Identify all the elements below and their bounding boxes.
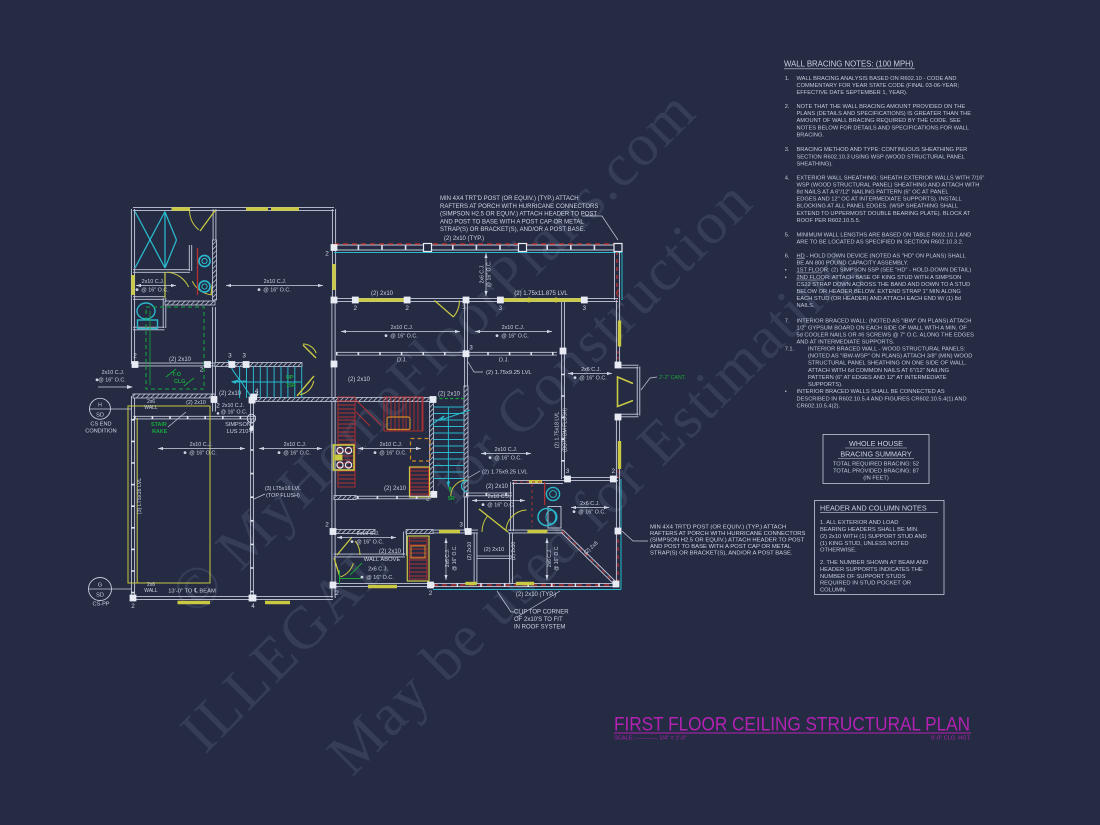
- svg-text:ROOF PER R602.10.5.5.: ROOF PER R602.10.5.5.: [797, 218, 861, 224]
- svg-text:@ 16" O.C.: @ 16" O.C.: [579, 376, 606, 382]
- svg-text:(2) 1.75x9.25 LVL: (2) 1.75x9.25 LVL: [486, 370, 532, 376]
- svg-text:3: 3: [499, 305, 503, 312]
- svg-text:@ 16" O.C.: @ 16" O.C.: [390, 334, 417, 340]
- svg-text:HD - HOLD DOWN DEVICE (NOTED A: HD - HOLD DOWN DEVICE (NOTED AS "HD" ON …: [797, 254, 966, 260]
- svg-text:BRACING.: BRACING.: [797, 132, 825, 138]
- svg-text:PATTERN (6" AT EDGES AND 12" A: PATTERN (6" AT EDGES AND 12" AT INTERMED…: [808, 375, 947, 381]
- svg-text:2x6 C.J.: 2x6 C.J.: [581, 367, 601, 373]
- svg-text:CS22 STRAP DOWN ACROSS THE BAN: CS22 STRAP DOWN ACROSS THE BAND AND DOWN…: [797, 282, 971, 288]
- svg-text:(3) LT5x16 LVL: (3) LT5x16 LVL: [137, 478, 143, 514]
- svg-text:(2) 2x10: (2) 2x10: [438, 392, 461, 398]
- svg-text:1ST FLOOR: (2) SIMPSON SSP (SE: 1ST FLOOR: (2) SIMPSON SSP (SEE "HD" - H…: [797, 268, 972, 274]
- svg-text:2: 2: [216, 403, 220, 410]
- svg-text:•: •: [785, 275, 787, 281]
- svg-text:RAFTERS AT PORCH WITH HURRICAN: RAFTERS AT PORCH WITH HURRICANE CONNECTO…: [440, 204, 598, 210]
- svg-text:H: H: [98, 403, 102, 409]
- svg-text:CR602.10.5.4(2).: CR602.10.5.4(2).: [797, 403, 841, 409]
- svg-text:•: •: [785, 268, 787, 274]
- svg-text:4: 4: [255, 391, 259, 398]
- svg-text:(TOP FLUSH): (TOP FLUSH): [266, 493, 300, 499]
- svg-text:2x10 C.J.: 2x10 C.J.: [502, 325, 525, 331]
- svg-text:SUPPORTS).: SUPPORTS).: [808, 382, 843, 388]
- svg-text:(BOTTOM FLUSH): (BOTTOM FLUSH): [563, 408, 569, 452]
- svg-text:BRACING SUMMARY: BRACING SUMMARY: [840, 450, 912, 459]
- svg-text:@ 16" O.C.: @ 16" O.C.: [487, 503, 514, 509]
- svg-text:•: •: [785, 389, 787, 395]
- svg-text:2: 2: [325, 522, 329, 529]
- svg-text:2: 2: [612, 468, 616, 475]
- svg-text:4.: 4.: [785, 176, 790, 182]
- svg-text:G: G: [98, 583, 102, 589]
- svg-text:2: 2: [429, 590, 433, 597]
- svg-text:(2) 2x10: (2) 2x10: [371, 291, 394, 297]
- svg-text:2x10 C.J.: 2x10 C.J.: [488, 494, 511, 500]
- svg-text:(2) 2x10: (2) 2x10: [348, 377, 371, 383]
- svg-text:3: 3: [566, 468, 570, 475]
- svg-text:2x10 C.J.: 2x10 C.J.: [357, 531, 380, 537]
- svg-text:2x6 C.J.: 2x6 C.J.: [547, 549, 553, 567]
- svg-text:NOTES BELOW FOR DETAILS AND SP: NOTES BELOW FOR DETAILS AND SPECIFICATIO…: [797, 125, 969, 131]
- svg-text:2x10 C.J.: 2x10 C.J.: [495, 447, 518, 453]
- svg-text:NUMBER OF SUPPORT STUDS: NUMBER OF SUPPORT STUDS: [820, 574, 906, 580]
- svg-text:COLUMN.: COLUMN.: [820, 587, 847, 593]
- svg-text:MINIMUM WALL LENGTHS ARE BASED: MINIMUM WALL LENGTHS ARE BASED ON TABLE …: [797, 232, 972, 238]
- svg-text:WALL: WALL: [144, 405, 158, 411]
- svg-text:2x10 C.J.: 2x10 C.J.: [222, 403, 244, 409]
- svg-text:(2) 2x10: (2) 2x10: [186, 400, 206, 406]
- svg-text:SCALE: ------------ 1/4" = 1'-: SCALE: ------------ 1/4" = 1'-0": [614, 736, 687, 742]
- svg-text:CS-PP: CS-PP: [92, 602, 109, 608]
- svg-text:@ 16" O.C.: @ 16" O.C.: [452, 545, 458, 570]
- svg-text:5R: 5R: [448, 496, 455, 502]
- svg-text:(2) 2x10: (2) 2x10: [219, 391, 242, 397]
- svg-text:2x10 C.J.: 2x10 C.J.: [190, 442, 213, 448]
- svg-text:(2) 2x10: (2) 2x10: [467, 542, 473, 561]
- svg-text:COMMENTARY FOR YEAR STATE CODE: COMMENTARY FOR YEAR STATE CODE (FINAL 03…: [797, 83, 960, 89]
- svg-text:(SIMPSON H2.5 OR EQUIV.) ATTAC: (SIMPSON H2.5 OR EQUIV.) ATTACH HEADER T…: [650, 538, 805, 544]
- svg-text:STRAP(S) OR BRACKET(S), AND/OR: STRAP(S) OR BRACKET(S), AND/OR A POST BA…: [440, 227, 586, 233]
- svg-text:EACH STUD (OR HEADER) AND ATTA: EACH STUD (OR HEADER) AND ATTACH EACH EN…: [797, 296, 961, 302]
- svg-text:2x10 C.J.: 2x10 C.J.: [142, 279, 165, 285]
- svg-text:BRACING METHOD AND TYPE: CONTI: BRACING METHOD AND TYPE: CONTINUOUS SHEA…: [797, 147, 968, 153]
- svg-text:UP: UP: [286, 375, 294, 381]
- svg-text:2: 2: [426, 495, 430, 502]
- svg-text:EXTERIOR WALL SHEATHING: SHEAT: EXTERIOR WALL SHEATHING: SHEATH EXTERIOR…: [797, 176, 985, 182]
- svg-text:@ 16" O.C.: @ 16" O.C.: [554, 545, 560, 570]
- svg-text:(2) 2x10: (2) 2x10: [511, 542, 517, 561]
- svg-text:@ 16" O.C.: @ 16" O.C.: [189, 451, 216, 457]
- svg-text:5.: 5.: [785, 232, 790, 238]
- svg-text:AMOUNT OF WALL BRACING REQUIRE: AMOUNT OF WALL BRACING REQUIRED BY THE C…: [797, 118, 961, 124]
- svg-text:(IN FEET): (IN FEET): [863, 476, 889, 482]
- svg-text:REQUIRED IN STUD POCKET OR: REQUIRED IN STUD POCKET OR: [820, 581, 911, 587]
- svg-text:(2) 2x10: (2) 2x10: [486, 484, 509, 490]
- svg-text:RAFTERS AT PORCH WITH HURRICAN: RAFTERS AT PORCH WITH HURRICANE CONNECTO…: [650, 531, 806, 537]
- svg-text:D.J.: D.J.: [499, 358, 509, 364]
- svg-text:4: 4: [251, 603, 255, 610]
- svg-text:D.J.: D.J.: [397, 358, 407, 364]
- svg-text:EDGES AND 12" OC AT INTERMEDIA: EDGES AND 12" OC AT INTERMEDIATE SUPPORT…: [797, 197, 962, 203]
- svg-text:3.: 3.: [785, 147, 790, 153]
- svg-text:TOTAL REQUIRED BRACING: 52: TOTAL REQUIRED BRACING: 52: [833, 462, 919, 468]
- svg-text:DESCRIBED IN R602.10.5.4 AND F: DESCRIBED IN R602.10.5.4 AND FIGURES CR6…: [797, 396, 967, 402]
- svg-text:OTHERWISE.: OTHERWISE.: [820, 548, 857, 554]
- svg-text:AND POST TO BASE WITH A POST C: AND POST TO BASE WITH A POST CAP OR META…: [440, 219, 584, 225]
- svg-text:LUS 210-2: LUS 210-2: [227, 429, 254, 435]
- svg-text:@ 16" O.C.: @ 16" O.C.: [379, 451, 406, 457]
- svg-text:(2) 1.75x11.875 LVL: (2) 1.75x11.875 LVL: [514, 291, 568, 297]
- svg-text:(2) 2x10 WITH (1) SUPPORT STUD: (2) 2x10 WITH (1) SUPPORT STUD AND: [820, 534, 927, 540]
- svg-text:2: 2: [325, 251, 329, 258]
- svg-text:3: 3: [469, 345, 473, 352]
- svg-text:INTERIOR BRACED WALLS SHALL BE: INTERIOR BRACED WALLS SHALL BE CONNECTED…: [797, 389, 945, 395]
- svg-text:WALL ABOVE: WALL ABOVE: [364, 557, 401, 563]
- svg-text:3: 3: [459, 522, 463, 529]
- svg-text:HEADER SUPPORTS INDICATES THE: HEADER SUPPORTS INDICATES THE: [820, 567, 923, 573]
- svg-text:(2) 1.75x18 LVL: (2) 1.75x18 LVL: [555, 412, 561, 449]
- svg-text:STAIR: STAIR: [151, 422, 167, 428]
- svg-text:(2) 2x10 (TYP.): (2) 2x10 (TYP.): [444, 236, 484, 242]
- svg-text:6.: 6.: [785, 254, 790, 260]
- svg-text:CLG.: CLG.: [174, 379, 187, 385]
- svg-text:@ 16" O.C.: @ 16" O.C.: [487, 261, 493, 287]
- svg-text:2x10 C.J.: 2x10 C.J.: [391, 325, 414, 331]
- svg-text:PLANS (DETAILS AND SPECIFICATI: PLANS (DETAILS AND SPECIFICATIONS) IS GR…: [797, 111, 972, 117]
- svg-text:SECTION R602.10.3 USING WSP (W: SECTION R602.10.3 USING WSP (WOOD STRUCT…: [797, 154, 965, 160]
- svg-text:CLIP TOP CORNER: CLIP TOP CORNER: [514, 610, 569, 616]
- svg-text:5d COOLER NAILS OR #6 SCREWS @: 5d COOLER NAILS OR #6 SCREWS @ 7" O.C. A…: [797, 332, 975, 338]
- svg-text:BLOCKING AT ALL PANEL EDGES. (: BLOCKING AT ALL PANEL EDGES. (WSP SHEATH…: [797, 204, 959, 210]
- svg-text:SD: SD: [96, 593, 104, 599]
- svg-text:2x10 C.J.: 2x10 C.J.: [264, 279, 287, 285]
- svg-text:3: 3: [583, 305, 587, 312]
- svg-text:2: 2: [133, 353, 137, 360]
- svg-text:MIN 4X4 TRT'D POST (OR EQUIV.): MIN 4X4 TRT'D POST (OR EQUIV.) (TYP.) AT…: [650, 525, 786, 531]
- svg-text:(3) LT5x16 LVL: (3) LT5x16 LVL: [265, 486, 301, 492]
- svg-text:INTERIOR BRACED WALL - WOOD ST: INTERIOR BRACED WALL - WOOD STRUCTURAL P…: [808, 347, 966, 353]
- svg-text:WALL BRACING ANALYSIS BASED ON: WALL BRACING ANALYSIS BASED ON R602.10 -…: [797, 76, 957, 82]
- svg-text:3: 3: [462, 304, 466, 311]
- svg-text:(2) 2x10: (2) 2x10: [484, 547, 505, 553]
- svg-text:7.1.: 7.1.: [785, 347, 795, 353]
- svg-text:@ 16" O.C.: @ 16" O.C.: [366, 575, 393, 581]
- svg-text:2x6 C.J.: 2x6 C.J.: [580, 501, 600, 507]
- svg-text:2. THE NUMBER SHOWN AT BEAM AN: 2. THE NUMBER SHOWN AT BEAM AND: [820, 560, 928, 566]
- svg-text:OF 2x10'S TO FIT: OF 2x10'S TO FIT: [514, 617, 563, 623]
- svg-text:(2) 2x10: (2) 2x10: [379, 549, 402, 555]
- svg-text:AND AT INTERMEDIATE SUPPORTS.: AND AT INTERMEDIATE SUPPORTS.: [797, 339, 895, 345]
- svg-text:1. ALL EXTERIOR AND LOAD: 1. ALL EXTERIOR AND LOAD: [820, 520, 898, 526]
- svg-text:(2) 2x10: (2) 2x10: [169, 357, 192, 363]
- svg-text:@ 16" O.C.: @ 16" O.C.: [494, 456, 521, 462]
- svg-text:BE AN 800 POUND CAPACITY ASSEM: BE AN 800 POUND CAPACITY ASSEMBLY.: [797, 261, 909, 267]
- svg-text:15R: 15R: [286, 383, 296, 389]
- svg-text:1/2" GYPSUM BOARD ON EACH SIDE: 1/2" GYPSUM BOARD ON EACH SIDE OF WALL W…: [797, 325, 968, 331]
- svg-text:CS END: CS END: [90, 422, 111, 428]
- svg-text:WALL BRACING NOTES: (100 MPH): WALL BRACING NOTES: (100 MPH): [784, 60, 914, 69]
- svg-text:2: 2: [405, 305, 409, 312]
- svg-text:3: 3: [228, 353, 232, 360]
- svg-text:(NOTED AS "IBW-WSP" ON PLANS): (NOTED AS "IBW-WSP" ON PLANS) ATTACH 3/8…: [808, 354, 972, 360]
- svg-text:IN ROOF SYSTEM: IN ROOF SYSTEM: [514, 624, 565, 630]
- svg-text:NOTE THAT THE WALL BRACING AMO: NOTE THAT THE WALL BRACING AMOUNT PROVID…: [797, 104, 966, 110]
- svg-text:@ 16" O.C.: @ 16" O.C.: [356, 540, 383, 546]
- svg-text:@ 16" O.C.: @ 16" O.C.: [501, 334, 528, 340]
- svg-text:2'-2" CANT.: 2'-2" CANT.: [659, 375, 686, 381]
- svg-text:(SIMPSON H2.5 OR EQUIV.) ATTAC: (SIMPSON H2.5 OR EQUIV.) ATTACH HEADER T…: [440, 212, 597, 218]
- svg-text:13'-0" TO ℄ BEAM: 13'-0" TO ℄ BEAM: [168, 589, 216, 595]
- svg-text:STRAP(S) OR BRACKET(S), AND/OR: STRAP(S) OR BRACKET(S), AND/OR A POST BA…: [650, 551, 793, 557]
- svg-text:2: 2: [354, 305, 358, 312]
- svg-text:@ 16" O.C.: @ 16" O.C.: [578, 510, 605, 516]
- svg-text:HEADER AND COLUMN NOTES: HEADER AND COLUMN NOTES: [820, 504, 927, 513]
- svg-text:(2) 1.75x9.25 LVL: (2) 1.75x9.25 LVL: [482, 470, 528, 476]
- svg-text:@ 16" O.C.: @ 16" O.C.: [263, 288, 290, 294]
- svg-text:CONDITION: CONDITION: [85, 429, 116, 435]
- svg-text:2: 2: [335, 590, 339, 597]
- svg-text:2x10 C.J.: 2x10 C.J.: [284, 442, 307, 448]
- svg-text:2x10 C.J.: 2x10 C.J.: [380, 442, 403, 448]
- svg-text:@ 16" O.C.: @ 16" O.C.: [98, 378, 125, 384]
- svg-text:STRUCTURAL PANEL SHEATHING ON: STRUCTURAL PANEL SHEATHING ON ONE SIDE O…: [808, 361, 967, 367]
- svg-text:7.: 7.: [785, 318, 790, 324]
- svg-text:ARE TO BE LOCATED AS SPECIFIED: ARE TO BE LOCATED AS SPECIFIED IN SECTIO…: [797, 239, 964, 245]
- svg-text:T-O: T-O: [172, 372, 181, 378]
- svg-text:BEARING HEADERS SHALL BE MIN.: BEARING HEADERS SHALL BE MIN.: [820, 527, 919, 533]
- svg-text:AND POST TO BASE WITH A POST C: AND POST TO BASE WITH A POST CAP OR META…: [650, 544, 792, 550]
- svg-text:2.: 2.: [785, 104, 790, 110]
- svg-text:INTERIOR BRACED WALL: (NOTED A: INTERIOR BRACED WALL: (NOTED AS "IBW" ON…: [797, 318, 972, 324]
- svg-text:WSP (WOOD STRUCTURAL PANEL) SH: WSP (WOOD STRUCTURAL PANEL) SHEATHING AN…: [797, 183, 980, 189]
- svg-text:RAKE: RAKE: [152, 429, 168, 435]
- svg-text:2: 2: [200, 367, 204, 374]
- svg-text:@ 16" O.C.: @ 16" O.C.: [141, 288, 168, 294]
- svg-text:2x10 C.J.: 2x10 C.J.: [102, 370, 125, 376]
- svg-text:1.: 1.: [785, 76, 790, 82]
- svg-text:8d NAILS AT A 6"/12" NAILING P: 8d NAILS AT A 6"/12" NAILING PATTERN (6"…: [797, 190, 949, 196]
- svg-text:SHEATHING).: SHEATHING).: [797, 161, 834, 167]
- svg-text:EFFECTIVE DATE SEPTEMBER 1, YE: EFFECTIVE DATE SEPTEMBER 1, YEAR).: [797, 90, 908, 96]
- svg-text:@ 16" O.C.: @ 16" O.C.: [283, 451, 310, 457]
- svg-text:TOTAL PROVIDED BRACING: 87: TOTAL PROVIDED BRACING: 87: [833, 469, 919, 475]
- svg-text:BELOW OR HEADER BELOW. EXTEND: BELOW OR HEADER BELOW. EXTEND STRAP 1" M…: [797, 289, 961, 295]
- svg-text:NAILS.: NAILS.: [797, 303, 815, 309]
- svg-text:MIN 4X4 TRT'D POST (OR EQUIV.): MIN 4X4 TRT'D POST (OR EQUIV.) (TYP.) AT…: [440, 196, 579, 202]
- svg-text:3: 3: [242, 353, 246, 360]
- svg-text:WHOLE HOUSE: WHOLE HOUSE: [849, 439, 903, 448]
- svg-text:SD: SD: [96, 413, 104, 419]
- svg-text:WALL: WALL: [144, 588, 158, 594]
- svg-text:2: 2: [131, 603, 135, 610]
- svg-text:EXTEND TO UPPERMOST DOUBLE BEA: EXTEND TO UPPERMOST DOUBLE BEARING PLATE…: [797, 211, 971, 217]
- svg-text:9'-0" CLG. HGT.: 9'-0" CLG. HGT.: [931, 736, 971, 742]
- svg-text:(2) 2x10: (2) 2x10: [384, 486, 407, 492]
- svg-text:SIMPSON: SIMPSON: [225, 422, 251, 428]
- svg-text:2x6 C.J.: 2x6 C.J.: [480, 264, 486, 283]
- svg-text:2x6 C.J.: 2x6 C.J.: [368, 567, 388, 573]
- svg-text:FIRST FLOOR CEILING STRUCTURAL: FIRST FLOOR CEILING STRUCTURAL PLAN: [614, 714, 970, 736]
- svg-text:ATTACH WITH 6d COMMON NAILS AT: ATTACH WITH 6d COMMON NAILS AT 6"/12" NA…: [808, 368, 949, 374]
- svg-text:(1) KING STUD, UNLESS NOTED: (1) KING STUD, UNLESS NOTED: [820, 541, 909, 547]
- svg-text:@ 16" O.C.: @ 16" O.C.: [221, 410, 247, 416]
